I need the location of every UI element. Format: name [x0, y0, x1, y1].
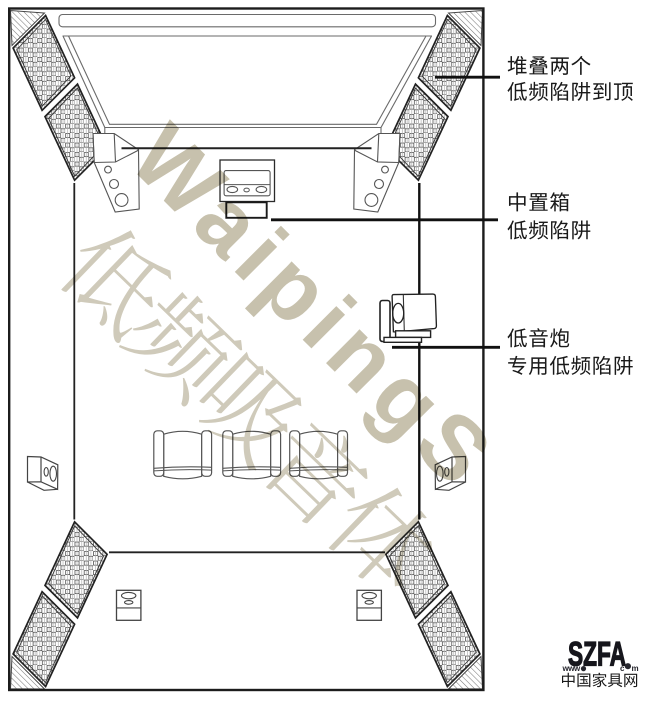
svg-text:www: www	[562, 664, 581, 673]
svg-text:c: c	[620, 664, 625, 673]
svg-text:m: m	[632, 664, 639, 673]
